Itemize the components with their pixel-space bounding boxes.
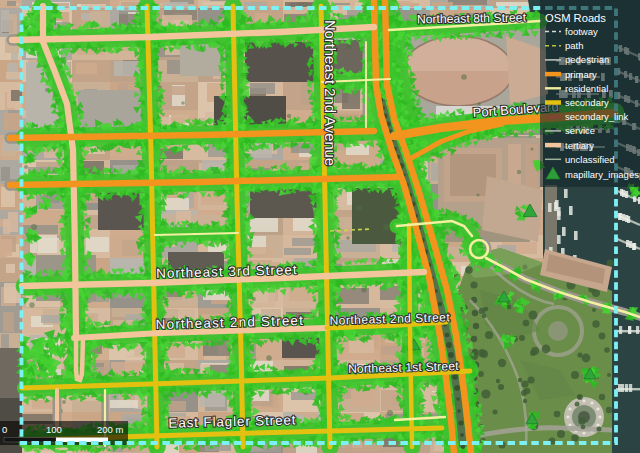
svg-text:secondary_link: secondary_link xyxy=(565,111,629,122)
svg-text:tertiary: tertiary xyxy=(565,140,594,151)
svg-text:pedestrian: pedestrian xyxy=(565,54,609,65)
svg-text:Northeast 2nd Avenue: Northeast 2nd Avenue xyxy=(322,20,338,166)
svg-text:OSM Roads: OSM Roads xyxy=(545,12,606,24)
svg-text:Northeast 8th Street: Northeast 8th Street xyxy=(417,11,527,27)
svg-text:residential: residential xyxy=(565,83,608,94)
svg-text:mapillary_images: mapillary_images xyxy=(565,169,639,180)
svg-text:100: 100 xyxy=(46,424,62,435)
svg-text:200 m: 200 m xyxy=(97,424,123,435)
svg-text:unclassified: unclassified xyxy=(565,154,615,165)
svg-text:path: path xyxy=(565,40,584,51)
svg-text:service: service xyxy=(565,125,595,136)
svg-text:secondary: secondary xyxy=(565,97,609,108)
svg-text:0: 0 xyxy=(2,424,7,435)
svg-text:footway: footway xyxy=(565,26,598,37)
svg-text:primary: primary xyxy=(565,69,597,80)
